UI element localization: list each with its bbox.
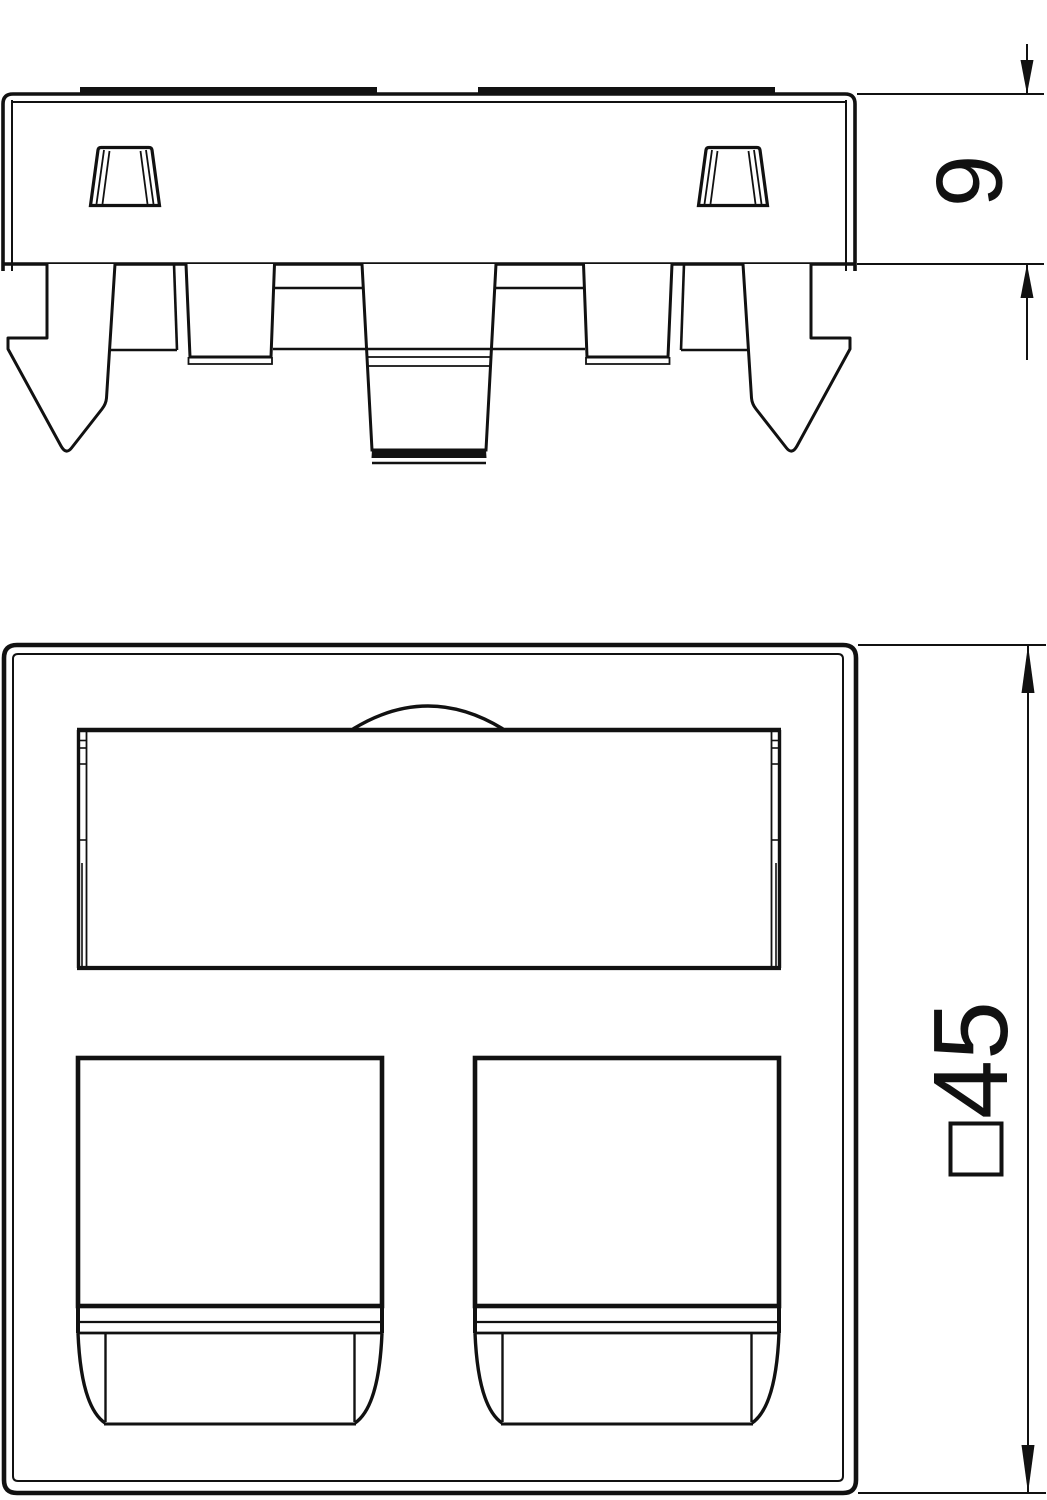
- mounting-feet: [8, 264, 850, 463]
- technical-drawing-sheet: 9: [0, 0, 1047, 1500]
- front-view-drawing: 45: [4, 645, 1046, 1493]
- square-symbol-icon: [951, 1124, 1002, 1175]
- arrow-down-icon: [1022, 1445, 1035, 1493]
- dimension-45-label: 45: [912, 1001, 1030, 1119]
- barbed-foot-right: [743, 264, 850, 451]
- center-tongue-tip-band: [372, 450, 487, 458]
- mid-tongue-left: [186, 264, 275, 357]
- dimension-9-label: 9: [917, 155, 1022, 207]
- latch-right: [699, 148, 768, 206]
- top-rib-right: [478, 87, 775, 95]
- dimension-45: 45: [858, 645, 1046, 1493]
- snap-leg-left-edge: [174, 264, 177, 350]
- jack-right-window: [475, 1058, 779, 1306]
- jack-left-window: [78, 1058, 382, 1306]
- barbed-foot-left: [8, 264, 115, 451]
- dimension-9: 9: [857, 44, 1044, 360]
- arrow-up-icon: [1022, 645, 1035, 693]
- arrow-up-icon: [1021, 264, 1034, 298]
- arrow-down-icon: [1021, 60, 1034, 94]
- mid-tongue-right: [584, 264, 673, 357]
- snap-leg-right-edge: [681, 264, 684, 350]
- top-rib-left: [80, 87, 377, 95]
- dimensional-drawing: 9: [0, 0, 1047, 1500]
- side-view-drawing: 9: [3, 44, 1044, 463]
- latch-left: [91, 148, 160, 206]
